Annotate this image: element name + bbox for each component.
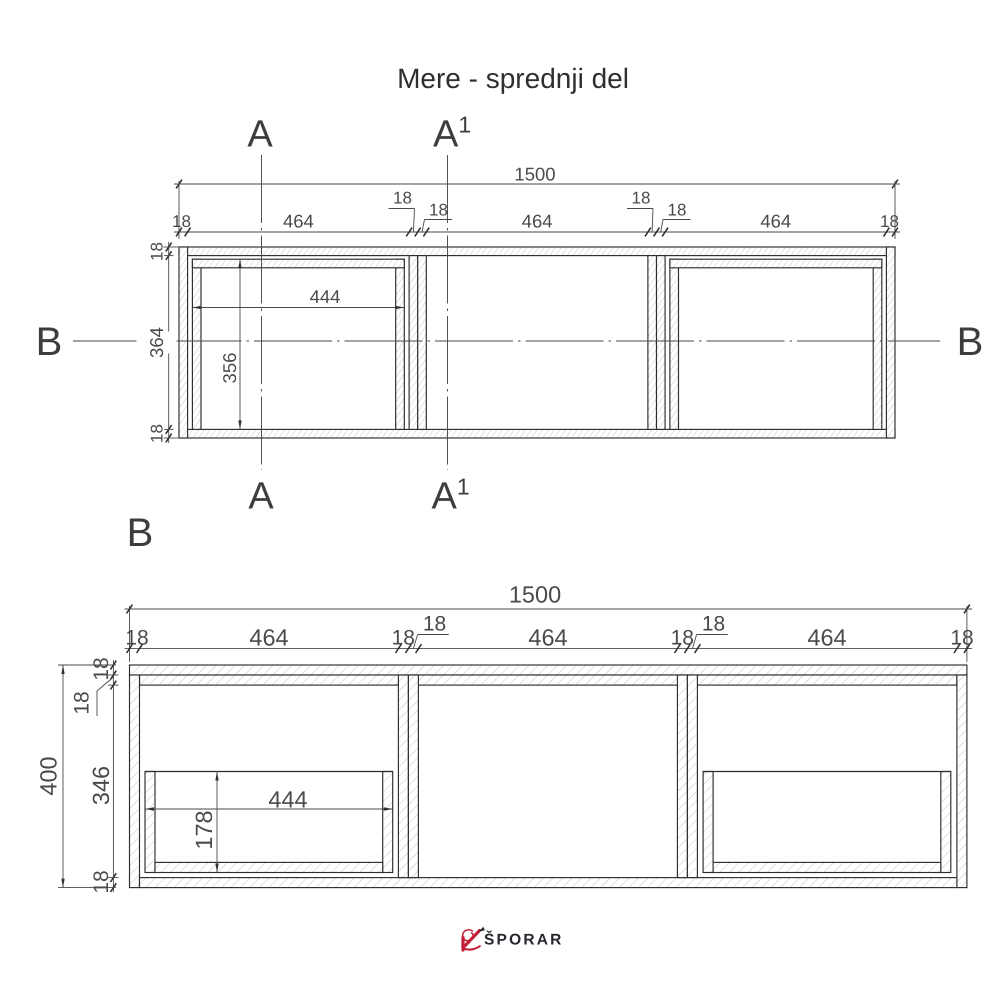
svg-text:18: 18 (148, 424, 167, 443)
svg-text:464: 464 (522, 211, 553, 232)
svg-text:B: B (127, 511, 154, 555)
svg-text:18: 18 (90, 657, 113, 680)
svg-text:464: 464 (283, 211, 314, 232)
svg-text:B: B (957, 320, 984, 364)
svg-text:364: 364 (146, 327, 167, 358)
svg-text:18: 18 (950, 627, 973, 650)
svg-text:18: 18 (393, 189, 412, 208)
svg-text:18: 18 (172, 212, 191, 231)
svg-text:Mere - sprednji del: Mere - sprednji del (397, 63, 629, 94)
svg-text:346: 346 (88, 766, 114, 805)
svg-text:18: 18 (423, 613, 446, 636)
svg-text:18: 18 (90, 870, 113, 893)
svg-text:464: 464 (249, 624, 288, 650)
svg-text:444: 444 (268, 786, 307, 812)
svg-text:178: 178 (191, 810, 217, 849)
svg-text:444: 444 (310, 286, 341, 307)
svg-text:1500: 1500 (514, 164, 555, 185)
svg-text:18: 18 (632, 189, 651, 208)
svg-text:ŠPORAR: ŠPORAR (484, 931, 564, 949)
svg-text:A: A (247, 114, 273, 156)
svg-text:18: 18 (429, 201, 448, 220)
svg-text:B: B (36, 320, 63, 364)
svg-text:18: 18 (392, 627, 415, 650)
svg-text:A: A (248, 476, 274, 518)
svg-text:18: 18 (148, 242, 167, 261)
svg-text:18: 18 (125, 627, 148, 650)
svg-text:464: 464 (807, 624, 846, 650)
svg-text:1500: 1500 (509, 581, 561, 607)
svg-text:18: 18 (702, 613, 725, 636)
svg-text:18: 18 (668, 201, 687, 220)
svg-text:18: 18 (880, 212, 899, 231)
svg-text:18: 18 (671, 627, 694, 650)
svg-text:464: 464 (528, 624, 567, 650)
svg-text:18: 18 (71, 691, 94, 714)
svg-text:356: 356 (219, 353, 240, 384)
svg-text:464: 464 (760, 211, 791, 232)
svg-text:400: 400 (35, 756, 61, 795)
